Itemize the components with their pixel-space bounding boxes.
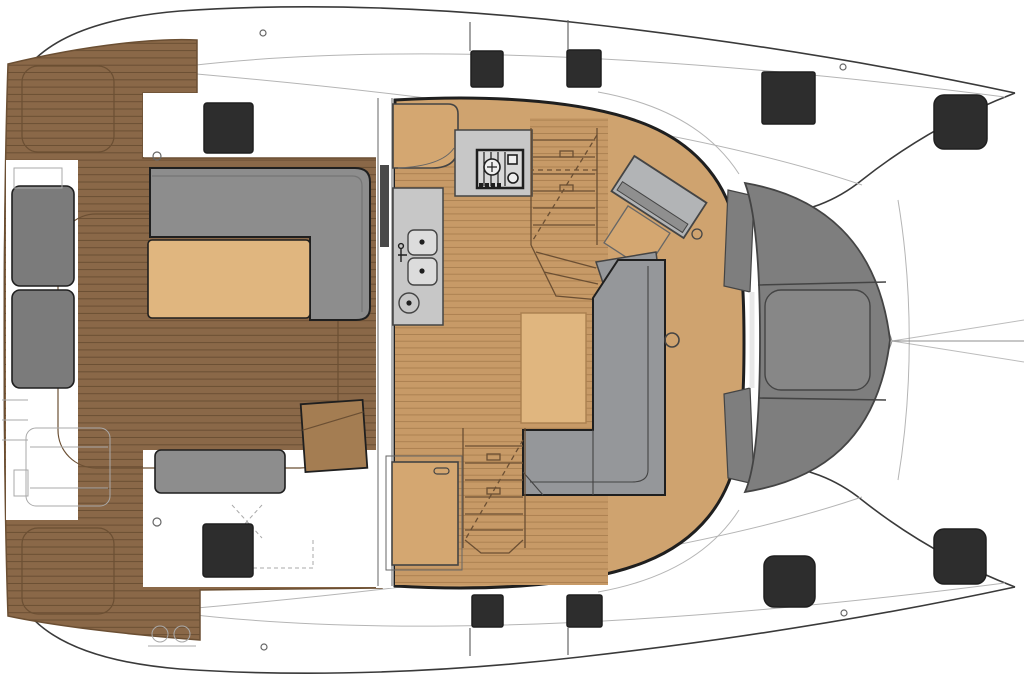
forward-step-port <box>724 190 754 292</box>
sliding-door-panel <box>380 165 389 247</box>
hatch-port-bow-1 <box>762 72 815 124</box>
hatch-starboard-bow-2 <box>934 529 986 584</box>
hatch-port-bow-2 <box>934 95 987 149</box>
hatch-cockpit-starboard <box>203 524 253 577</box>
transom-bench-cushion-starboard <box>12 290 74 388</box>
bridle-line-port <box>892 320 1024 341</box>
hatch-salon-roof-starboard-1 <box>472 595 503 627</box>
deck-plan-canvas <box>0 0 1024 680</box>
forward-bench-cushion <box>765 290 870 390</box>
stove-burner-small <box>508 173 518 183</box>
catamaran-deck-plan <box>0 0 1024 680</box>
forward-step-starboard <box>724 388 754 484</box>
hatch-cockpit-port <box>204 103 253 153</box>
stove-control <box>508 155 517 164</box>
aft-bench <box>155 450 285 493</box>
hatch-salon-roof-starboard-2 <box>567 595 602 627</box>
dinette-table <box>521 313 586 423</box>
bridle-line-starboard <box>892 341 1024 362</box>
helm-step-module <box>301 400 368 472</box>
stove <box>477 150 523 188</box>
cockpit-table <box>148 240 310 318</box>
hatch-salon-roof-port-1 <box>471 51 503 87</box>
transom-bench-cushion-port <box>12 186 74 286</box>
hatch-salon-roof-port-2 <box>567 50 601 87</box>
galley-corner-module <box>393 104 458 168</box>
salon <box>386 92 744 592</box>
aft-cockpit <box>2 40 382 646</box>
salon-aft-cabinet <box>386 456 462 570</box>
forward-cockpit <box>724 183 890 492</box>
hatch-starboard-bow-1 <box>764 556 815 607</box>
